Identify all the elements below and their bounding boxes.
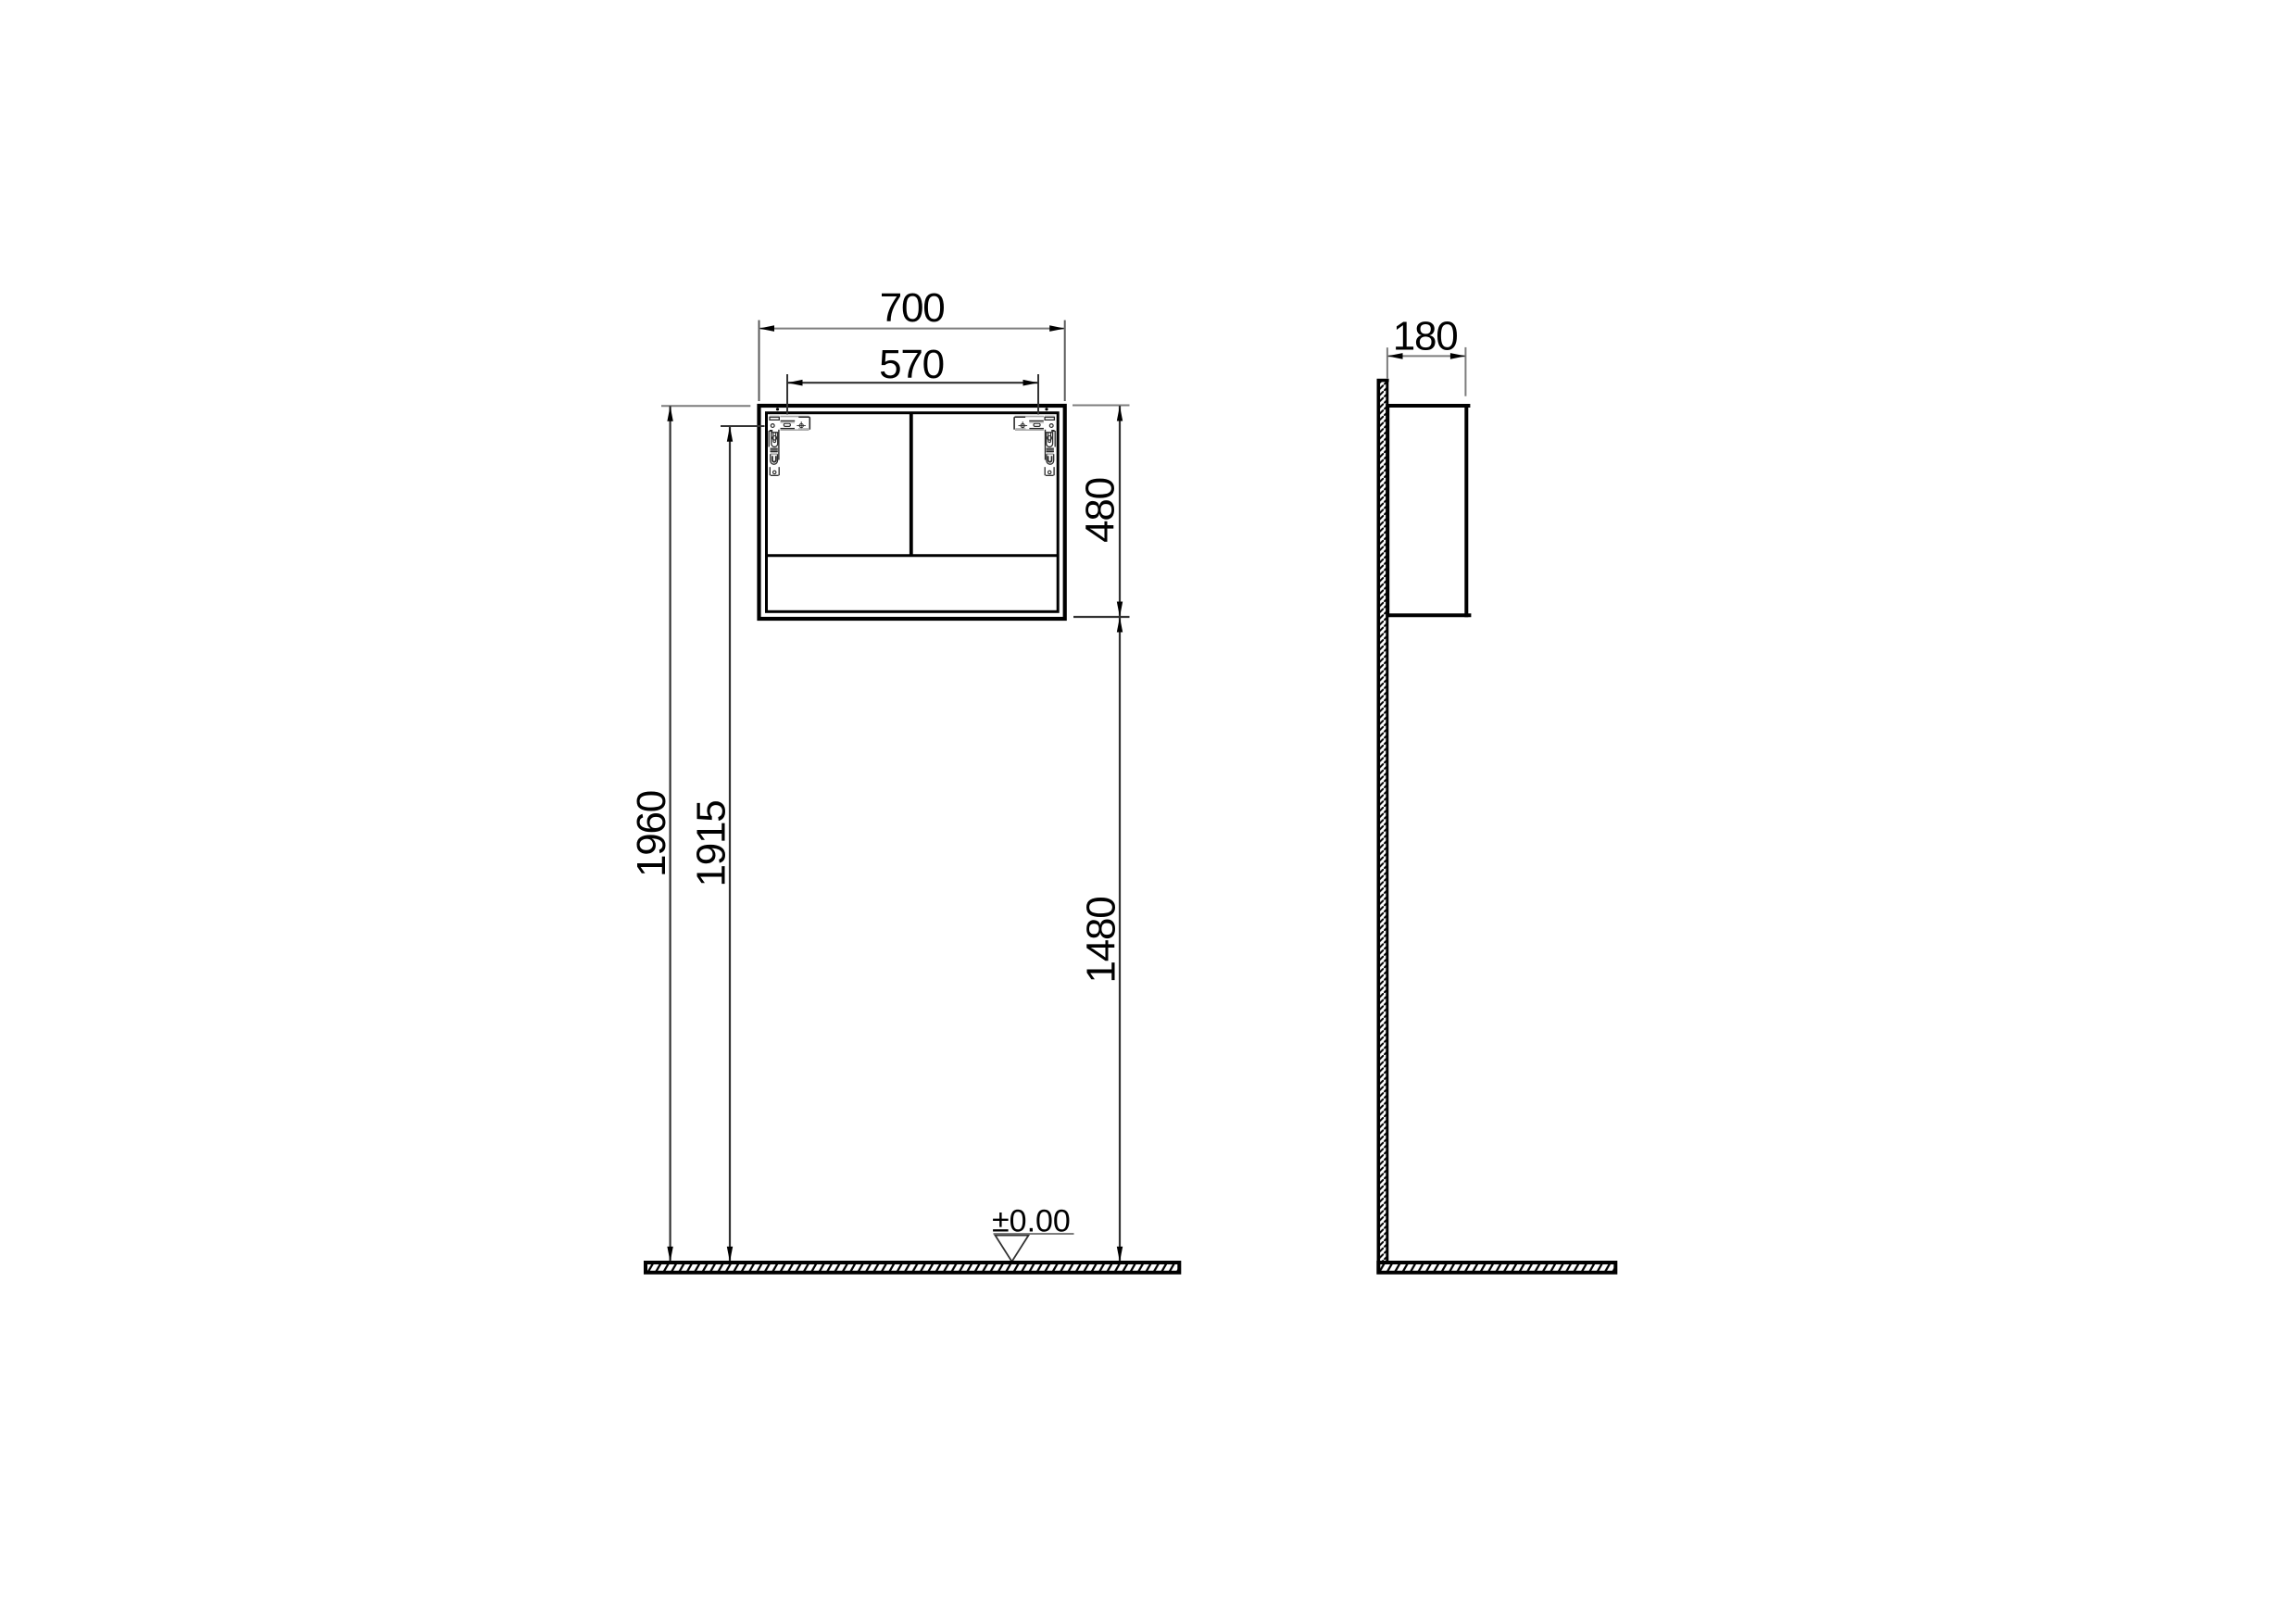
svg-text:570: 570: [879, 342, 944, 387]
svg-text:1915: 1915: [689, 800, 734, 886]
svg-text:1960: 1960: [629, 791, 674, 877]
svg-text:1480: 1480: [1079, 897, 1124, 983]
svg-text:180: 180: [1393, 314, 1458, 359]
svg-text:700: 700: [880, 285, 945, 331]
svg-text:480: 480: [1078, 478, 1123, 543]
